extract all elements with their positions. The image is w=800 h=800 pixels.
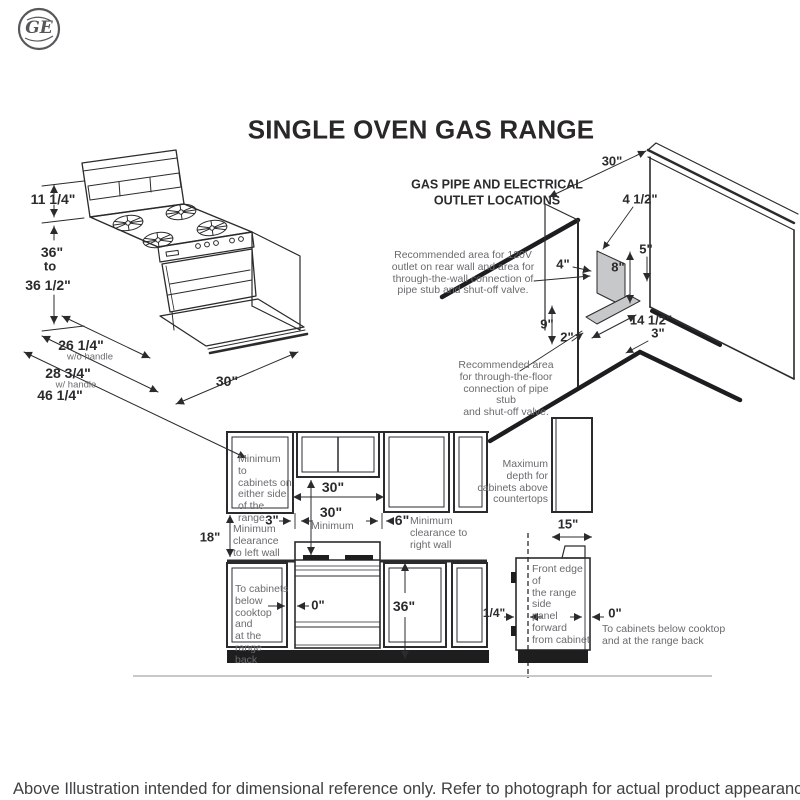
dim-floor-corner: 2" <box>560 330 573 345</box>
gas-diagram-heading: GAS PIPE AND ELECTRICAL OUTLET LOCATIONS <box>411 177 583 208</box>
dim-vertical-minimum-sub: Minimum <box>311 521 354 533</box>
note-wall-outlet: Recommended area for 120V outlet on rear… <box>388 250 538 297</box>
dim-range-width: 30" <box>216 373 238 389</box>
dim-quarter-inch: 1/4" <box>483 606 505 620</box>
dim-floor-depth: 3" <box>651 326 664 341</box>
dim-cabinet-depth: 15" <box>558 517 579 532</box>
note-max-depth: Maximum depth for cabinets above counter… <box>466 459 548 506</box>
note-below-cabinets: To cabinets below cooktop and at the ran… <box>235 584 291 666</box>
footer-disclaimer: Above Illustration intended for dimensio… <box>13 780 800 799</box>
range-base <box>518 650 588 663</box>
dim-gas-wall-width: 30" <box>602 154 623 169</box>
note-floor-pipe: Recommended area for through-the-floor c… <box>458 360 554 419</box>
note-below-cabinets-side: To cabinets below cooktop and at the ran… <box>602 624 732 648</box>
dim-zero-side: 0" <box>608 606 621 621</box>
dim-outlet-top: 5" <box>639 242 652 257</box>
dim-outlet-height: 8" <box>611 260 624 275</box>
spec-sheet-page: GE SINGLE OVEN GAS RANGE 11 1/4" 36" to … <box>0 0 800 800</box>
dim-height-bottom: 36 1/2" <box>25 277 71 293</box>
dim-outlet-offset: 4 1/2" <box>622 192 657 207</box>
dim-vertical-minimum: 30" <box>320 504 342 520</box>
note-front-edge: Front edge of the range side panel forwa… <box>532 564 592 646</box>
dim-floor-height: 9" <box>540 317 553 332</box>
dim-right-clearance: 6" <box>395 512 409 528</box>
dim-depth-door-open: 46 1/4" <box>37 387 83 403</box>
dim-counter-height: 36" <box>391 598 417 614</box>
dim-corner-offset: 4" <box>556 257 569 272</box>
ge-logo-monogram: GE <box>25 18 52 38</box>
dim-cabinet-to-counter: 18" <box>200 530 221 545</box>
dim-opening-width: 30" <box>322 479 344 495</box>
page-title: SINGLE OVEN GAS RANGE <box>248 115 595 146</box>
dim-zero-clearance: 0" <box>311 598 324 613</box>
dim-height-mid: to <box>44 259 56 274</box>
dim-backguard-height: 11 1/4" <box>31 191 76 207</box>
note-left-wall: Minimum clearance to left wall <box>233 524 293 559</box>
dim-depth-no-handle-sub: w/o handle <box>67 352 113 363</box>
note-right-wall: Minimum clearance to right wall <box>410 516 490 551</box>
